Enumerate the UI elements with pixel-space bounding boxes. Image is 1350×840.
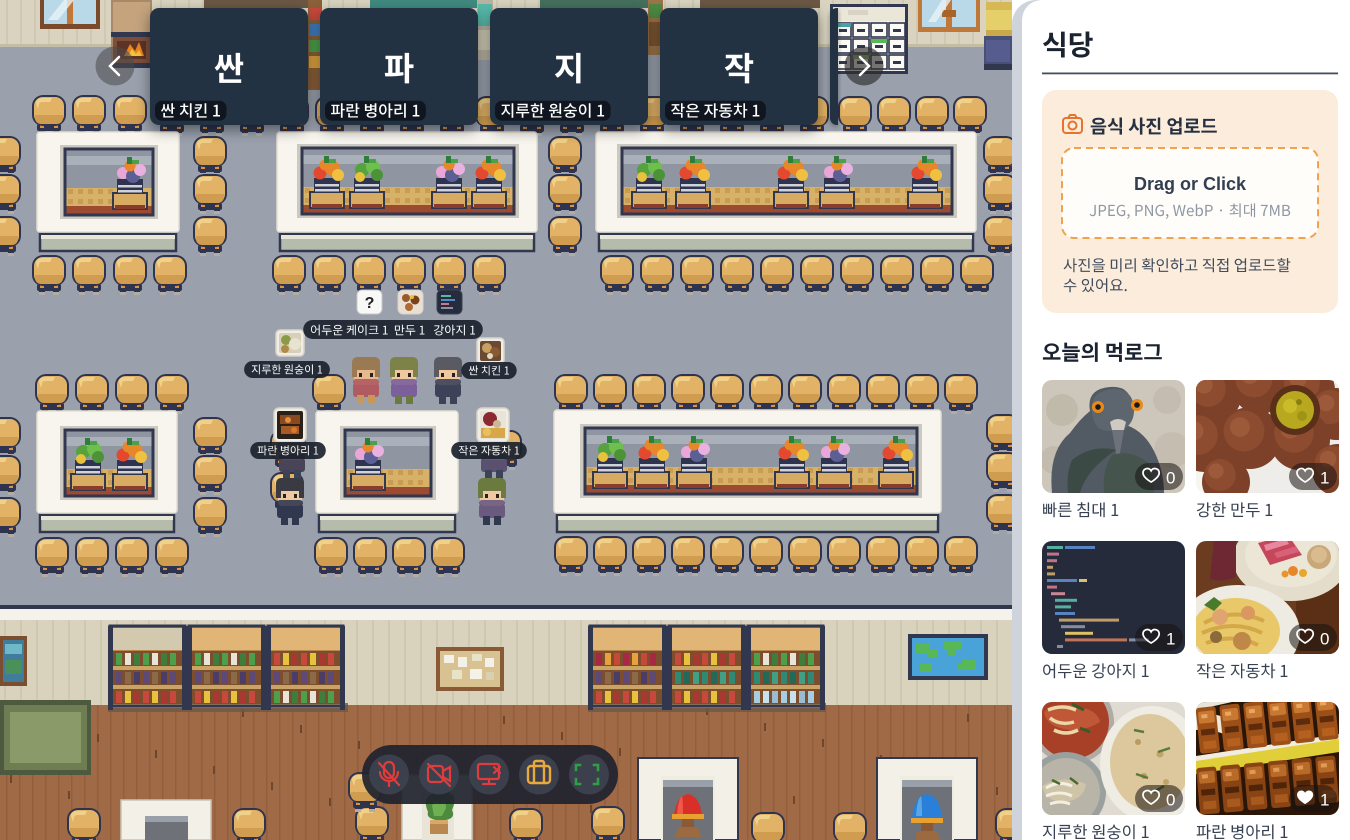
svg-text:1: 1 xyxy=(1166,630,1175,649)
svg-text:1: 1 xyxy=(1320,469,1329,488)
svg-text:?: ? xyxy=(365,295,375,312)
svg-text:1: 1 xyxy=(1320,791,1329,810)
svg-text:0: 0 xyxy=(1166,791,1175,810)
svg-text:0: 0 xyxy=(1166,469,1175,488)
svg-text:0: 0 xyxy=(1320,630,1329,649)
svg-text:Drag or Click: Drag or Click xyxy=(1134,174,1247,194)
